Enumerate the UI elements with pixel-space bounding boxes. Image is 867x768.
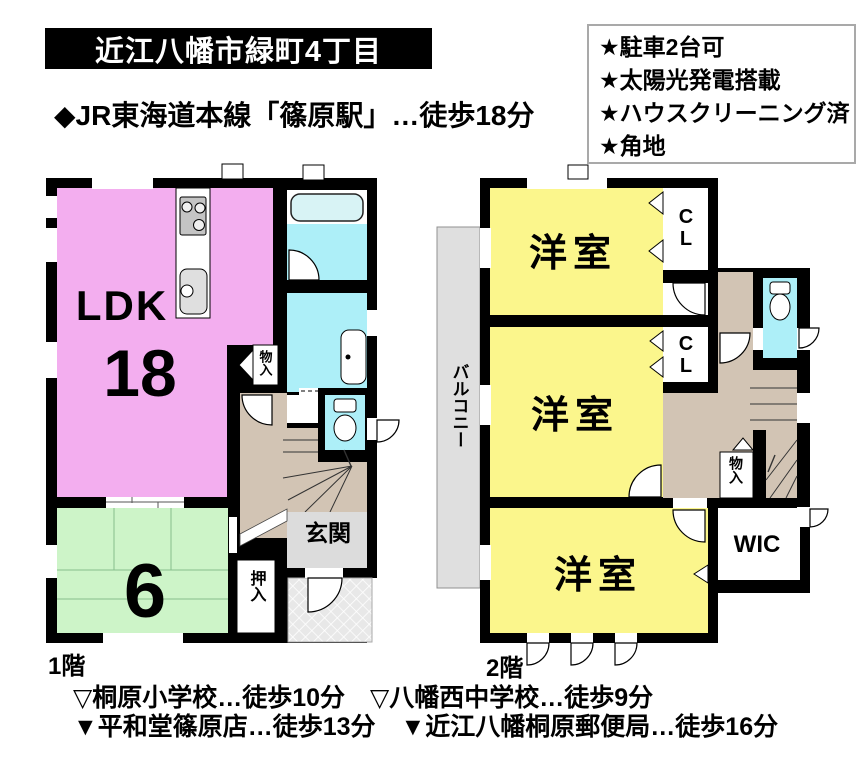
window bbox=[46, 228, 57, 262]
floor2-label: 2階 bbox=[486, 648, 523, 683]
ldk-size-label: 18 bbox=[103, 336, 176, 410]
balcony-label: バルコニー bbox=[450, 363, 470, 448]
window bbox=[92, 178, 153, 189]
storage-label: 物入 bbox=[728, 455, 744, 484]
storage-label: 物入 bbox=[258, 349, 273, 376]
stove-icon bbox=[180, 197, 206, 235]
sliding-door bbox=[106, 497, 184, 508]
vent-icon bbox=[303, 165, 324, 180]
closet-label: CL bbox=[675, 206, 697, 250]
door-arc bbox=[377, 420, 399, 442]
window bbox=[46, 342, 57, 378]
door-arc bbox=[799, 328, 819, 348]
access-footer: ▽桐原小学校…徒歩10分 ▽八幡西中学校…徒歩9分 ▼平和堂篠原店…徒歩13分 … bbox=[73, 684, 778, 742]
wic-label: WIC bbox=[734, 531, 781, 558]
oshiire-label: 押入 bbox=[248, 569, 267, 602]
room3-label: 洋室 bbox=[554, 554, 642, 597]
address-title: 近江八幡市緑町4丁目 bbox=[95, 28, 382, 70]
feature-item: ★角地 bbox=[599, 130, 854, 163]
room2-label: 洋室 bbox=[531, 394, 619, 437]
address-title-banner: 近江八幡市緑町4丁目 bbox=[45, 28, 432, 69]
window bbox=[46, 196, 57, 218]
tatami-size-label: 6 bbox=[124, 549, 166, 634]
balcony: バルコニー bbox=[437, 227, 480, 588]
window bbox=[103, 633, 183, 643]
vent-icon bbox=[222, 164, 243, 179]
feature-item: ★太陽光発電搭載 bbox=[599, 64, 854, 97]
window bbox=[797, 393, 810, 423]
window bbox=[229, 517, 237, 553]
closet-label: CL bbox=[675, 333, 697, 377]
washroom bbox=[287, 293, 367, 395]
entrance-porch bbox=[288, 568, 379, 644]
swing-window bbox=[527, 633, 637, 665]
window bbox=[46, 545, 57, 578]
window bbox=[527, 178, 607, 189]
ldk-label: LDK bbox=[76, 282, 168, 329]
window bbox=[367, 310, 377, 336]
door-arc bbox=[810, 509, 828, 527]
bathroom bbox=[287, 190, 367, 280]
room1-label: 洋室 bbox=[529, 232, 617, 275]
window bbox=[480, 385, 491, 425]
tatami-room: 6 bbox=[57, 508, 228, 634]
station-access-line: ◆JR東海道本線「篠原駅」…徒歩18分 bbox=[54, 94, 534, 134]
floorplan-1f: 物入 玄関 bbox=[40, 160, 400, 660]
floorplan-2f: バルコニー CL CL bbox=[430, 160, 840, 670]
washbasin-icon bbox=[341, 330, 366, 384]
window bbox=[480, 545, 491, 580]
access-line-schools: ▽桐原小学校…徒歩10分 ▽八幡西中学校…徒歩9分 bbox=[73, 684, 778, 713]
sink-icon bbox=[180, 269, 207, 314]
window bbox=[480, 228, 491, 268]
floor1-label: 1階 bbox=[48, 646, 85, 681]
vent-icon bbox=[568, 165, 588, 179]
kitchen-counter bbox=[176, 188, 210, 318]
wic-closet: WIC bbox=[718, 507, 828, 580]
toilet-icon bbox=[770, 282, 790, 320]
feature-item: ★ハウスクリーニング済 bbox=[599, 97, 854, 130]
feature-item: ★駐車2台可 bbox=[599, 31, 854, 64]
oshiire-closet: 押入 bbox=[237, 560, 275, 633]
features-box: ★駐車2台可 ★太陽光発電搭載 ★ハウスクリーニング済 ★角地 bbox=[587, 24, 856, 164]
toilet-room-1f bbox=[318, 388, 399, 462]
flyer-page: 近江八幡市緑町4丁目 ◆JR東海道本線「篠原駅」…徒歩18分 ★駐車2台可 ★太… bbox=[0, 0, 867, 768]
bathtub-icon bbox=[291, 194, 363, 221]
genkan-label: 玄関 bbox=[305, 520, 351, 546]
toilet-icon bbox=[334, 399, 356, 441]
access-line-shops: ▼平和堂篠原店…徒歩13分 ▼近江八幡桐原郵便局…徒歩16分 bbox=[73, 713, 778, 742]
